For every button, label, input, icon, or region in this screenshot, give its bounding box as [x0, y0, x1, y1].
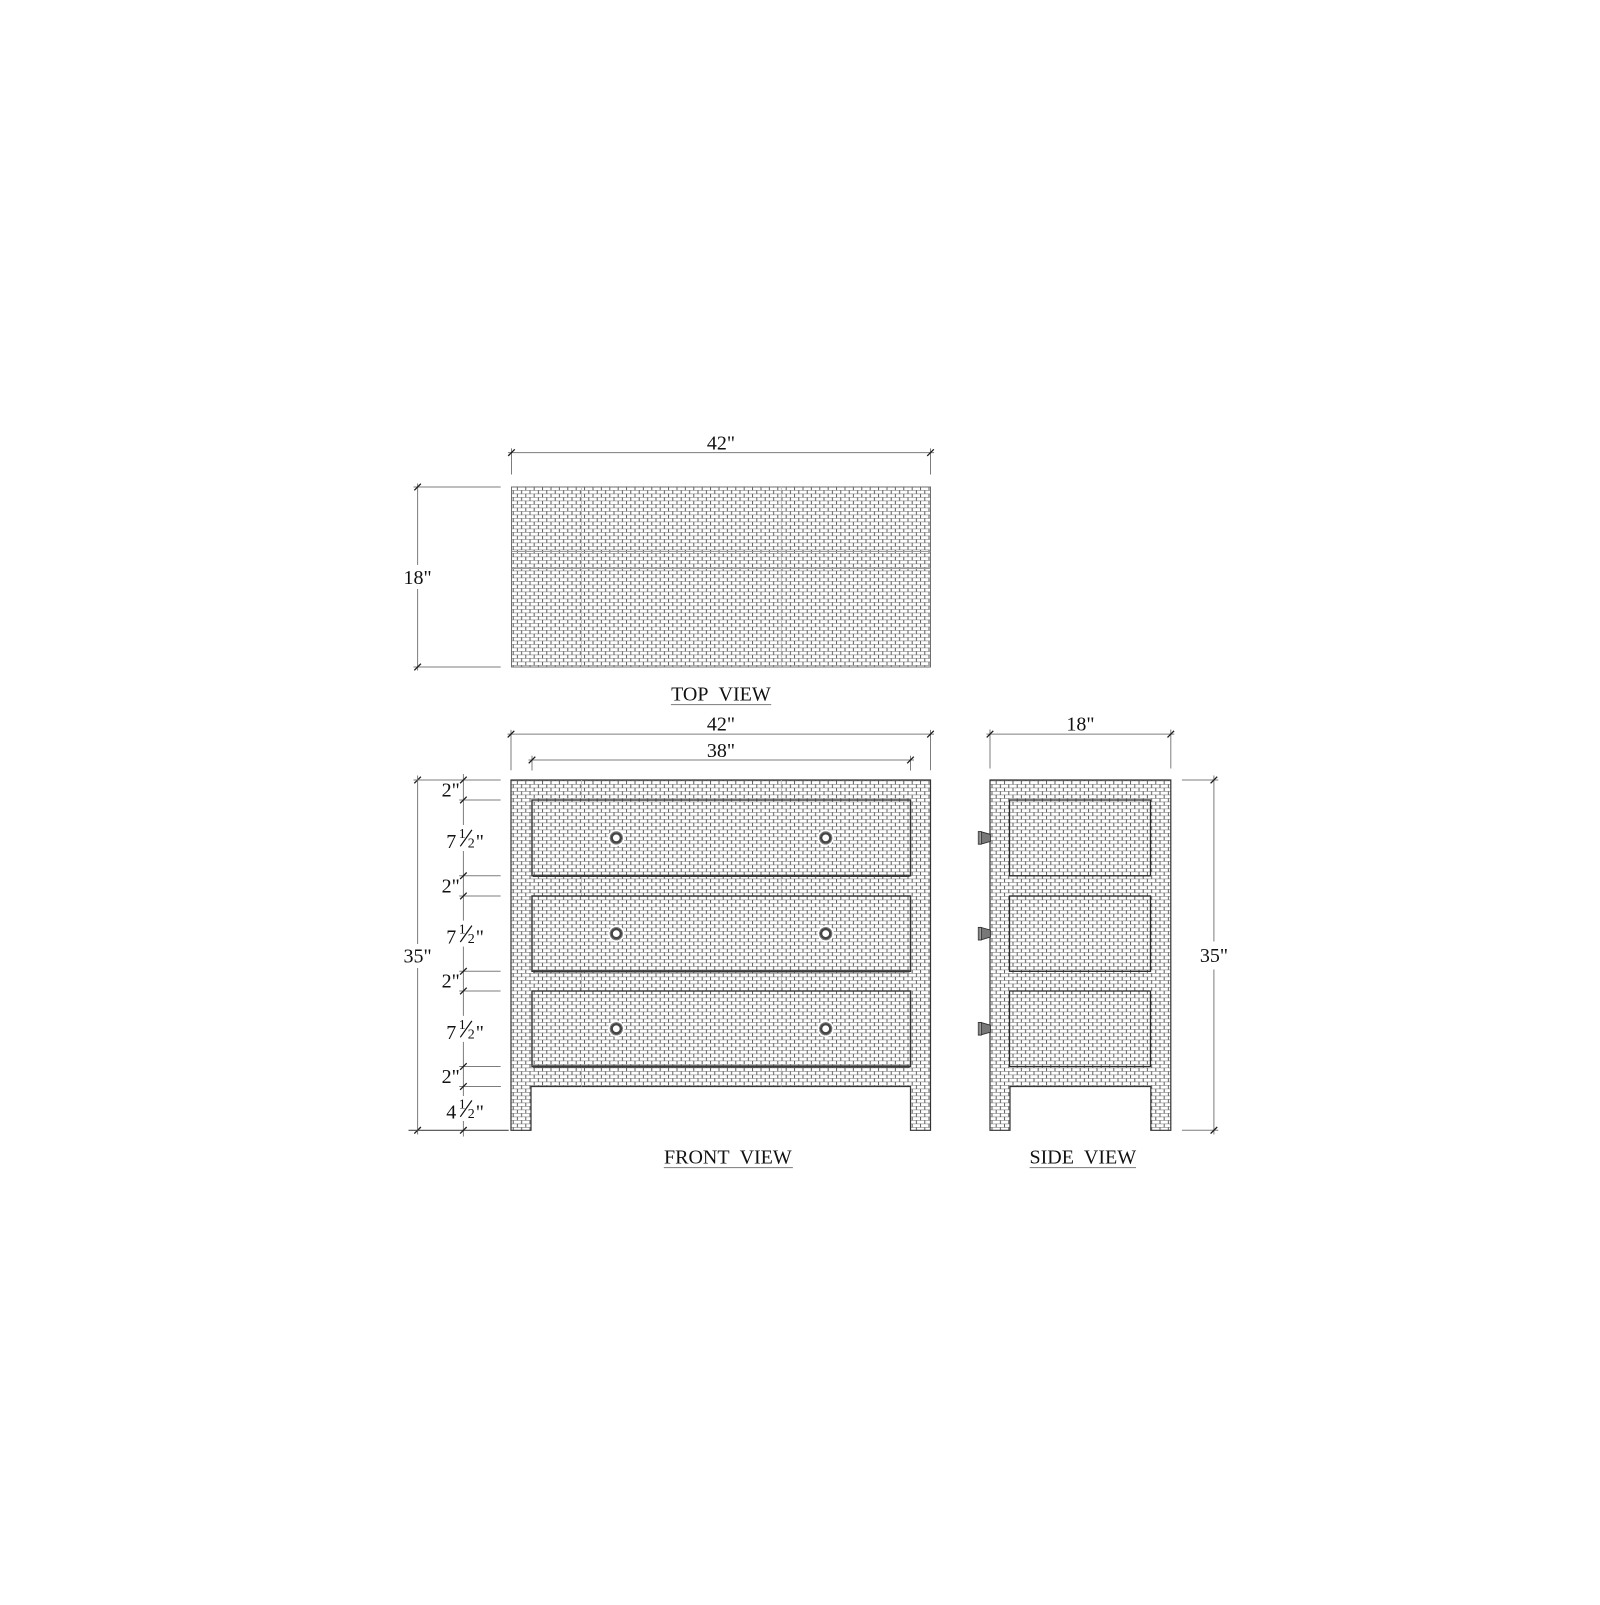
svg-text:42": 42" — [707, 432, 735, 454]
svg-text:18": 18" — [404, 567, 432, 589]
svg-text:2": 2" — [442, 971, 460, 993]
svg-text:TOP VIEW: TOP VIEW — [671, 683, 771, 705]
svg-text:2": 2" — [442, 876, 460, 898]
svg-text:42": 42" — [707, 714, 735, 736]
svg-text:7: 7 — [446, 1022, 456, 1044]
svg-text:2": 2" — [442, 780, 460, 802]
svg-text:2: 2 — [468, 932, 475, 947]
svg-text:SIDE VIEW: SIDE VIEW — [1029, 1147, 1136, 1169]
svg-text:18": 18" — [1066, 714, 1094, 736]
svg-text:38": 38" — [707, 740, 735, 762]
svg-text:4: 4 — [446, 1101, 456, 1123]
svg-text:": " — [476, 1022, 484, 1044]
svg-text:FRONT VIEW: FRONT VIEW — [664, 1147, 792, 1169]
svg-text:35": 35" — [404, 946, 432, 968]
svg-text:2: 2 — [468, 1107, 475, 1122]
svg-text:7: 7 — [446, 927, 456, 949]
svg-text:35": 35" — [1200, 945, 1228, 967]
svg-text:": " — [476, 1101, 484, 1123]
svg-text:": " — [476, 927, 484, 949]
svg-text:": " — [476, 831, 484, 853]
svg-text:2: 2 — [468, 1027, 475, 1042]
svg-text:2": 2" — [442, 1066, 460, 1088]
svg-text:7: 7 — [446, 831, 456, 853]
svg-text:2: 2 — [468, 836, 475, 851]
